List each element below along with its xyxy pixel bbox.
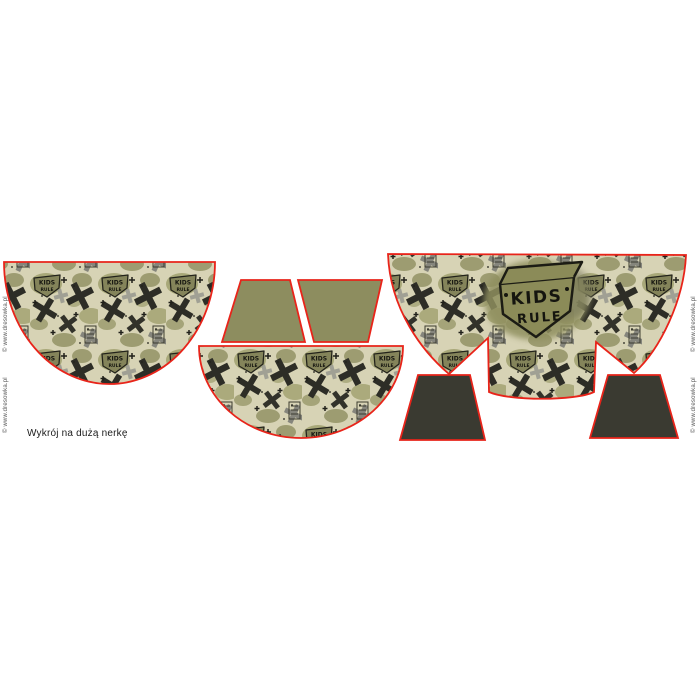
- pattern-sheet-svg: KIDS RULE: [0, 0, 700, 700]
- watermark-right-top: © www.dresowka.pl: [691, 296, 697, 352]
- piece-side-strip-1: [222, 280, 305, 342]
- big-badge-text-line1: KIDS: [510, 286, 563, 310]
- watermark-right-bottom: © www.dresowka.pl: [691, 377, 697, 433]
- badge-dot-icon: [504, 293, 508, 297]
- piece-pouch-panel-left: [4, 262, 215, 384]
- pattern-sheet: KIDS RULE: [0, 0, 700, 700]
- watermark-left-bottom: © www.dresowka.pl: [3, 377, 9, 433]
- piece-dark-trapezoid-2: [590, 375, 678, 438]
- piece-dark-trapezoid-1: [400, 375, 485, 440]
- badge-dot-icon: [565, 287, 569, 291]
- watermark-left-top: © www.dresowka.pl: [3, 296, 9, 352]
- piece-side-strip-2: [298, 280, 382, 342]
- big-badge-text-line2: RULE: [517, 309, 564, 327]
- sheet-title: Wykrój na dużą nerkę: [27, 428, 128, 439]
- piece-pouch-panel-middle: [199, 346, 403, 438]
